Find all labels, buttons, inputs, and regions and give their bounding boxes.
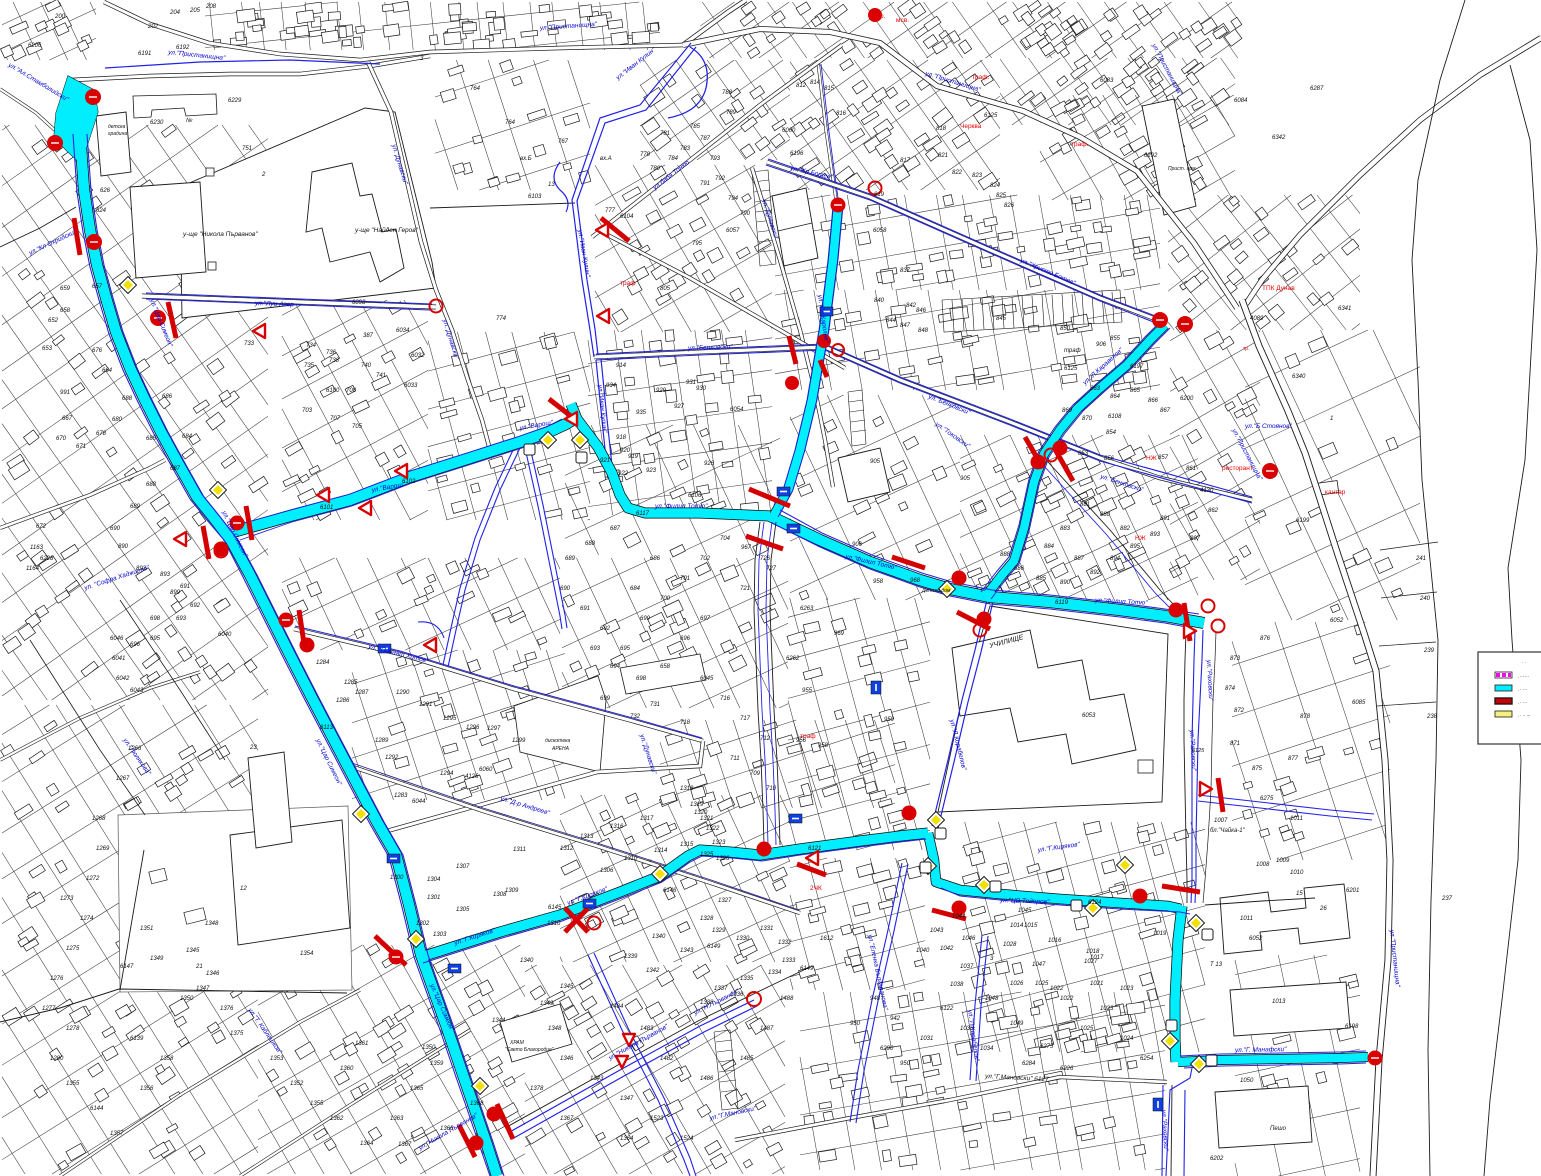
svg-text:1015: 1015 bbox=[1024, 923, 1038, 929]
svg-text:1486: 1486 bbox=[700, 1076, 714, 1082]
svg-text:790: 790 bbox=[740, 211, 751, 217]
svg-text:703: 703 bbox=[302, 408, 313, 414]
svg-text:6117: 6117 bbox=[636, 511, 650, 517]
svg-text:716: 716 bbox=[720, 696, 731, 702]
svg-text:881: 881 bbox=[1080, 502, 1090, 508]
svg-text:1346: 1346 bbox=[560, 1056, 574, 1062]
svg-text:740: 740 bbox=[361, 363, 372, 369]
svg-text:652: 652 bbox=[48, 318, 59, 324]
svg-text:1042: 1042 bbox=[940, 946, 954, 952]
svg-text:237: 237 bbox=[1441, 896, 1453, 902]
svg-text:6287: 6287 bbox=[1310, 86, 1324, 92]
svg-text:794: 794 bbox=[728, 196, 739, 202]
svg-text:825: 825 bbox=[996, 193, 1007, 199]
svg-text:823: 823 bbox=[972, 173, 983, 179]
svg-text:780: 780 bbox=[650, 166, 661, 172]
svg-text:1348: 1348 bbox=[548, 1026, 562, 1032]
svg-text:1273: 1273 bbox=[60, 896, 74, 902]
svg-text:958: 958 bbox=[873, 579, 884, 585]
svg-text:1487: 1487 bbox=[760, 1026, 774, 1032]
svg-text:1483: 1483 bbox=[640, 1026, 654, 1032]
svg-text:1366: 1366 bbox=[440, 1126, 454, 1132]
svg-text:884: 884 bbox=[1044, 544, 1055, 550]
svg-text:у-ще "Найден Геров": у-ще "Найден Геров" bbox=[354, 226, 419, 234]
svg-text:239: 239 bbox=[1423, 648, 1435, 654]
svg-text:1: 1 bbox=[1330, 416, 1333, 422]
svg-text:735: 735 bbox=[304, 363, 315, 369]
svg-text:1344: 1344 bbox=[492, 1018, 506, 1024]
svg-text:918: 918 bbox=[616, 435, 627, 441]
svg-text:1339: 1339 bbox=[624, 954, 638, 960]
svg-text:12: 12 bbox=[240, 886, 247, 892]
svg-text:АРЕНА: АРЕНА bbox=[551, 746, 570, 752]
svg-text:6119: 6119 bbox=[1055, 600, 1069, 606]
svg-text:1368: 1368 bbox=[470, 1101, 484, 1107]
svg-text:1307: 1307 bbox=[456, 864, 470, 870]
svg-text:693: 693 bbox=[176, 616, 187, 622]
svg-text:888: 888 bbox=[1000, 552, 1011, 558]
svg-text:783: 783 bbox=[680, 146, 691, 152]
svg-text:1375: 1375 bbox=[230, 1031, 244, 1037]
svg-text:1266: 1266 bbox=[128, 746, 142, 752]
svg-text:1276: 1276 bbox=[50, 976, 64, 982]
svg-text:4126: 4126 bbox=[465, 774, 479, 780]
svg-text:6146: 6146 bbox=[663, 888, 677, 894]
svg-text:897: 897 bbox=[1190, 536, 1201, 542]
svg-text:6057: 6057 bbox=[726, 228, 740, 234]
svg-text:718: 718 bbox=[680, 720, 691, 726]
svg-text:893: 893 bbox=[160, 572, 171, 578]
svg-text:1347: 1347 bbox=[196, 986, 210, 992]
svg-text:1007: 1007 bbox=[1214, 818, 1228, 824]
svg-text:2ЧК: 2ЧК bbox=[810, 885, 822, 892]
svg-text:704: 704 bbox=[720, 536, 731, 542]
svg-text:6340: 6340 bbox=[1292, 374, 1306, 380]
svg-text:1346: 1346 bbox=[206, 971, 220, 977]
svg-text:690: 690 bbox=[560, 586, 571, 592]
svg-text:1021: 1021 bbox=[1090, 981, 1103, 987]
svg-text:6149: 6149 bbox=[800, 966, 814, 972]
svg-text:204: 204 bbox=[169, 10, 181, 16]
svg-text:870: 870 bbox=[1082, 416, 1093, 422]
svg-text:1317: 1317 bbox=[640, 816, 654, 822]
svg-text:тр.: тр. bbox=[1243, 346, 1249, 352]
svg-text:894: 894 bbox=[1110, 556, 1121, 562]
svg-text:1347: 1347 bbox=[620, 1096, 634, 1102]
svg-text:1335: 1335 bbox=[740, 976, 754, 982]
svg-text:923: 923 bbox=[646, 468, 657, 474]
svg-text:ул."Луи Агер: ул."Луи Агер bbox=[254, 300, 294, 308]
svg-text:Детски дом: Детски дом bbox=[921, 588, 951, 594]
svg-text:967: 967 bbox=[741, 545, 752, 551]
svg-text:траф: траф bbox=[1064, 348, 1081, 354]
svg-text:684: 684 bbox=[182, 434, 193, 440]
svg-text:6103: 6103 bbox=[528, 194, 542, 200]
svg-text:1323: 1323 bbox=[712, 840, 726, 846]
svg-text:672: 672 bbox=[36, 524, 47, 530]
svg-text:1299: 1299 bbox=[512, 738, 526, 744]
svg-text:1349: 1349 bbox=[540, 1001, 554, 1007]
svg-text:653: 653 bbox=[42, 346, 53, 352]
svg-text:ХРАМ: ХРАМ bbox=[509, 1040, 525, 1046]
svg-text:1019: 1019 bbox=[1153, 931, 1167, 937]
svg-text:1318: 1318 bbox=[680, 786, 694, 792]
svg-text:6229: 6229 bbox=[228, 98, 242, 104]
svg-text:6040: 6040 bbox=[218, 632, 232, 638]
svg-text:871: 871 bbox=[1230, 741, 1240, 747]
svg-text:688: 688 bbox=[122, 396, 133, 402]
svg-text:1306: 1306 bbox=[600, 868, 614, 874]
svg-text:657: 657 bbox=[92, 284, 103, 290]
svg-text:1312: 1312 bbox=[560, 846, 574, 852]
svg-text:1523: 1523 bbox=[650, 1116, 664, 1122]
svg-text:840: 840 bbox=[874, 298, 885, 304]
svg-text:Т 13: Т 13 bbox=[1210, 962, 1223, 968]
svg-text:202: 202 bbox=[147, 24, 159, 30]
svg-text:1485: 1485 bbox=[740, 1056, 754, 1062]
svg-text:6206: 6206 bbox=[28, 43, 42, 49]
svg-text:689: 689 bbox=[130, 504, 141, 510]
svg-text:878: 878 bbox=[1300, 714, 1311, 720]
svg-text:892: 892 bbox=[136, 566, 147, 572]
svg-text:6108: 6108 bbox=[1108, 414, 1122, 420]
svg-text:6201: 6201 bbox=[1346, 888, 1359, 894]
svg-text:886: 886 bbox=[1014, 566, 1025, 572]
svg-text:240: 240 bbox=[1419, 596, 1431, 602]
svg-text:764: 764 bbox=[470, 86, 481, 92]
svg-text:1290: 1290 bbox=[396, 690, 410, 696]
svg-text:6145: 6145 bbox=[548, 905, 562, 911]
svg-text:.· ·· –: .· ·· – bbox=[1518, 713, 1530, 719]
svg-text:1355: 1355 bbox=[66, 1081, 80, 1087]
svg-text:1488: 1488 bbox=[780, 996, 794, 1002]
svg-text:793: 793 bbox=[710, 156, 721, 162]
svg-text:6098: 6098 bbox=[352, 300, 366, 306]
svg-text:844: 844 bbox=[886, 318, 897, 324]
svg-text:1025: 1025 bbox=[1080, 1026, 1094, 1032]
svg-text:850: 850 bbox=[1060, 326, 1071, 332]
svg-text:906: 906 bbox=[852, 542, 863, 548]
svg-text:787: 787 bbox=[700, 136, 711, 142]
svg-text:1325: 1325 bbox=[700, 852, 714, 858]
svg-text:вх.А: вх.А bbox=[600, 156, 612, 162]
svg-text:1304: 1304 bbox=[427, 877, 441, 883]
svg-text:1294: 1294 bbox=[440, 771, 454, 777]
svg-text:1326: 1326 bbox=[716, 856, 730, 862]
svg-text:6060: 6060 bbox=[479, 767, 493, 773]
svg-text:1286: 1286 bbox=[336, 698, 350, 704]
svg-text:885: 885 bbox=[1036, 576, 1047, 582]
svg-text:1367: 1367 bbox=[398, 1142, 412, 1148]
svg-text:700: 700 bbox=[660, 596, 671, 602]
svg-text:1283: 1283 bbox=[394, 793, 408, 799]
svg-text:686: 686 bbox=[650, 556, 661, 562]
svg-text:1319: 1319 bbox=[690, 802, 704, 808]
svg-text:6284: 6284 bbox=[1022, 1061, 1036, 1067]
svg-text:23: 23 bbox=[249, 745, 257, 751]
svg-text:траф.: траф. bbox=[1071, 141, 1089, 148]
svg-text:1275: 1275 bbox=[66, 946, 80, 952]
svg-text:1023: 1023 bbox=[1120, 986, 1134, 992]
svg-text:1037: 1037 bbox=[960, 964, 974, 970]
svg-text:1278: 1278 bbox=[66, 1026, 80, 1032]
svg-text:685: 685 bbox=[146, 436, 157, 442]
svg-text:6032: 6032 bbox=[411, 353, 425, 359]
svg-text:733: 733 bbox=[244, 341, 255, 347]
svg-text:1277: 1277 bbox=[42, 1006, 56, 1012]
svg-text:865: 865 bbox=[1130, 388, 1141, 394]
svg-text:200: 200 bbox=[54, 14, 66, 20]
svg-text:6263: 6263 bbox=[800, 606, 814, 612]
svg-text:№: № bbox=[186, 117, 193, 124]
svg-text:930: 930 bbox=[696, 386, 707, 392]
svg-text:688: 688 bbox=[146, 482, 157, 488]
svg-text:694: 694 bbox=[610, 664, 621, 670]
svg-text:6083: 6083 bbox=[1100, 78, 1114, 84]
svg-text:1289: 1289 bbox=[375, 738, 389, 744]
svg-text:890: 890 bbox=[118, 544, 129, 550]
svg-text:6342: 6342 bbox=[1272, 135, 1286, 141]
svg-text:1482: 1482 bbox=[660, 1056, 674, 1062]
svg-text:1016: 1016 bbox=[1048, 938, 1062, 944]
svg-text:741: 741 bbox=[376, 373, 386, 379]
svg-text:1359: 1359 bbox=[430, 1061, 444, 1067]
svg-text:238: 238 bbox=[1426, 714, 1438, 720]
svg-text:914: 914 bbox=[616, 363, 627, 369]
svg-text:6041: 6041 bbox=[112, 656, 125, 662]
svg-text:921: 921 bbox=[600, 458, 610, 464]
svg-text:707: 707 bbox=[330, 416, 341, 422]
svg-text:837: 837 bbox=[900, 268, 911, 274]
svg-text:1351: 1351 bbox=[140, 926, 153, 932]
svg-text:1301: 1301 bbox=[427, 895, 440, 901]
svg-text:6052: 6052 bbox=[1249, 936, 1263, 942]
svg-text:738: 738 bbox=[329, 358, 340, 364]
svg-text:мсв.: мсв. bbox=[896, 17, 909, 24]
svg-text:1329: 1329 bbox=[712, 928, 726, 934]
svg-text:875: 875 bbox=[1252, 766, 1263, 772]
svg-text:906: 906 bbox=[1096, 342, 1107, 348]
svg-text:1047: 1047 bbox=[1032, 962, 1046, 968]
svg-text:бл."Чайка-1": бл."Чайка-1" bbox=[1210, 827, 1246, 834]
svg-text:1274: 1274 bbox=[80, 916, 94, 922]
svg-text:1295: 1295 bbox=[443, 716, 457, 722]
svg-text:.······: .······ bbox=[1518, 674, 1530, 680]
svg-text:1348: 1348 bbox=[205, 921, 219, 927]
svg-text:детска: детска bbox=[108, 124, 125, 130]
svg-text:Прист. арм: Прист. арм bbox=[1168, 166, 1196, 172]
svg-text:6044: 6044 bbox=[412, 799, 426, 805]
svg-text:6196: 6196 bbox=[790, 151, 804, 157]
svg-text:712: 712 bbox=[760, 736, 771, 742]
svg-text:919: 919 bbox=[628, 454, 639, 460]
svg-text:848: 848 bbox=[918, 328, 929, 334]
svg-text:6060: 6060 bbox=[782, 128, 796, 134]
svg-text:1044: 1044 bbox=[952, 914, 966, 920]
svg-text:.· ···: .· ··· bbox=[1518, 687, 1528, 693]
svg-text:1350: 1350 bbox=[422, 1045, 436, 1051]
svg-text:6085: 6085 bbox=[1352, 700, 1366, 706]
svg-text:дискотека: дискотека bbox=[545, 738, 570, 744]
svg-text:767: 767 bbox=[558, 139, 569, 145]
svg-text:890: 890 bbox=[1060, 580, 1071, 586]
svg-text:6046: 6046 bbox=[110, 636, 124, 642]
svg-text:6084: 6084 bbox=[1234, 98, 1248, 104]
svg-text:1040: 1040 bbox=[916, 948, 930, 954]
svg-text:1291: 1291 bbox=[419, 702, 432, 708]
svg-text:853: 853 bbox=[1078, 451, 1089, 457]
svg-text:696: 696 bbox=[680, 636, 691, 642]
svg-text:734: 734 bbox=[306, 343, 317, 349]
svg-text:1296: 1296 bbox=[466, 725, 480, 731]
svg-text:1356: 1356 bbox=[140, 1086, 154, 1092]
svg-text:1484: 1484 bbox=[610, 1004, 624, 1010]
svg-text:905: 905 bbox=[870, 459, 881, 465]
svg-text:1332: 1332 bbox=[778, 940, 792, 946]
svg-text:6292: 6292 bbox=[1144, 153, 1158, 159]
svg-text:874: 874 bbox=[1225, 686, 1236, 692]
svg-text:1361: 1361 bbox=[355, 1041, 368, 1047]
svg-text:822: 822 bbox=[952, 170, 963, 176]
svg-text:863: 863 bbox=[1090, 386, 1101, 392]
svg-text:1022: 1022 bbox=[1060, 996, 1074, 1002]
svg-text:15: 15 bbox=[1296, 891, 1303, 897]
svg-text:922: 922 bbox=[618, 471, 629, 477]
svg-text:958: 958 bbox=[818, 743, 829, 749]
svg-text:1008: 1008 bbox=[1256, 862, 1270, 868]
svg-text:6192: 6192 bbox=[176, 45, 190, 51]
svg-text:736: 736 bbox=[326, 350, 337, 356]
svg-text:1327: 1327 bbox=[718, 898, 732, 904]
svg-text:6125: 6125 bbox=[984, 113, 998, 119]
svg-text:6058: 6058 bbox=[873, 228, 887, 234]
svg-text:658: 658 bbox=[660, 664, 671, 670]
svg-text:.· ···: .· ··· bbox=[1518, 700, 1528, 706]
svg-text:1305: 1305 bbox=[456, 907, 470, 913]
svg-text:751: 751 bbox=[242, 146, 252, 152]
svg-text:6122: 6122 bbox=[940, 1006, 954, 1012]
svg-text:1272: 1272 bbox=[86, 876, 100, 882]
svg-text:789: 789 bbox=[726, 110, 737, 116]
svg-text:6262: 6262 bbox=[786, 656, 800, 662]
svg-text:855: 855 bbox=[1110, 336, 1121, 342]
svg-text:1376: 1376 bbox=[220, 1006, 234, 1012]
svg-text:1292: 1292 bbox=[385, 755, 399, 761]
svg-text:1297: 1297 bbox=[487, 726, 501, 732]
svg-text:6254: 6254 bbox=[1140, 1056, 1154, 1062]
svg-text:687: 687 bbox=[610, 526, 621, 532]
svg-text:1328: 1328 bbox=[700, 916, 714, 922]
svg-text:1011: 1011 bbox=[1290, 816, 1303, 822]
svg-text:821: 821 bbox=[938, 153, 948, 159]
svg-text:968: 968 bbox=[910, 578, 921, 584]
svg-text:784: 784 bbox=[668, 156, 679, 162]
svg-text:· ·: · · bbox=[1522, 660, 1527, 666]
svg-text:624: 624 bbox=[96, 208, 107, 214]
svg-text:241: 241 bbox=[1415, 556, 1426, 562]
svg-text:931: 931 bbox=[686, 380, 696, 386]
svg-text:1357: 1357 bbox=[110, 1131, 124, 1137]
svg-text:1302: 1302 bbox=[416, 921, 430, 927]
svg-text:6147: 6147 bbox=[120, 964, 134, 970]
svg-text:градина: градина bbox=[108, 131, 127, 137]
svg-text:686: 686 bbox=[162, 394, 173, 400]
svg-text:6033: 6033 bbox=[404, 383, 418, 389]
svg-text:1269: 1269 bbox=[96, 846, 110, 852]
svg-text:805: 805 bbox=[660, 286, 671, 292]
svg-text:819: 819 bbox=[874, 192, 885, 198]
svg-text:1280: 1280 bbox=[50, 1056, 64, 1062]
svg-text:731: 731 bbox=[650, 702, 660, 708]
svg-text:792: 792 bbox=[715, 176, 726, 182]
svg-text:205: 205 bbox=[189, 8, 201, 14]
svg-text:6341: 6341 bbox=[1338, 306, 1351, 312]
svg-text:856: 856 bbox=[1104, 456, 1115, 462]
svg-text:6275: 6275 bbox=[1260, 796, 1274, 802]
svg-text:13: 13 bbox=[548, 182, 555, 188]
svg-text:1315: 1315 bbox=[680, 842, 694, 848]
svg-text:691: 691 bbox=[580, 606, 590, 612]
svg-text:676: 676 bbox=[92, 348, 103, 354]
svg-text:1011: 1011 bbox=[1240, 916, 1253, 922]
svg-text:689: 689 bbox=[565, 556, 576, 562]
svg-text:траф: траф bbox=[620, 280, 636, 287]
svg-text:4130: 4130 bbox=[1200, 488, 1214, 494]
svg-text:1309: 1309 bbox=[505, 888, 519, 894]
svg-text:1038: 1038 bbox=[950, 982, 964, 988]
svg-text:6053: 6053 bbox=[1082, 713, 1096, 719]
svg-text:1268: 1268 bbox=[92, 816, 106, 822]
svg-text:905: 905 bbox=[960, 476, 971, 482]
svg-text:788: 788 bbox=[722, 90, 733, 96]
svg-text:920: 920 bbox=[620, 448, 631, 454]
svg-text:667: 667 bbox=[62, 416, 73, 422]
svg-text:847: 847 bbox=[900, 323, 911, 329]
svg-text:ул."Филип Тотю": ул."Филип Тотю" bbox=[654, 503, 708, 510]
svg-text:6202: 6202 bbox=[1210, 1156, 1224, 1162]
svg-text:693: 693 bbox=[590, 646, 601, 652]
svg-text:1340: 1340 bbox=[652, 934, 666, 940]
svg-text:1352: 1352 bbox=[290, 1081, 304, 1087]
svg-text:959: 959 bbox=[884, 717, 895, 723]
svg-text:658: 658 bbox=[60, 308, 71, 314]
svg-text:698: 698 bbox=[636, 676, 647, 682]
svg-text:950: 950 bbox=[900, 1061, 911, 1067]
svg-text:1345: 1345 bbox=[560, 984, 574, 990]
svg-text:1028: 1028 bbox=[1003, 942, 1017, 948]
svg-text:857: 857 bbox=[1158, 455, 1169, 461]
svg-text:699: 699 bbox=[600, 696, 611, 702]
svg-text:684: 684 bbox=[630, 586, 641, 592]
svg-text:891: 891 bbox=[1160, 516, 1170, 522]
svg-text:1036: 1036 bbox=[960, 1026, 974, 1032]
svg-text:Пешо: Пешо bbox=[1270, 1126, 1287, 1132]
svg-text:872: 872 bbox=[1234, 708, 1245, 714]
svg-text:690: 690 bbox=[110, 526, 121, 532]
svg-text:893: 893 bbox=[1150, 532, 1161, 538]
svg-text:934: 934 bbox=[606, 383, 617, 389]
svg-text:705: 705 bbox=[352, 424, 363, 430]
svg-text:6106: 6106 bbox=[688, 493, 702, 499]
svg-text:691: 691 bbox=[180, 584, 190, 590]
svg-text:702: 702 bbox=[700, 556, 711, 562]
svg-text:678: 678 bbox=[96, 431, 107, 437]
svg-text:6124: 6124 bbox=[1088, 900, 1102, 906]
svg-text:721: 721 bbox=[740, 586, 750, 592]
svg-text:892: 892 bbox=[1090, 570, 1101, 576]
svg-text:1316: 1316 bbox=[610, 824, 624, 830]
svg-text:710: 710 bbox=[766, 786, 777, 792]
